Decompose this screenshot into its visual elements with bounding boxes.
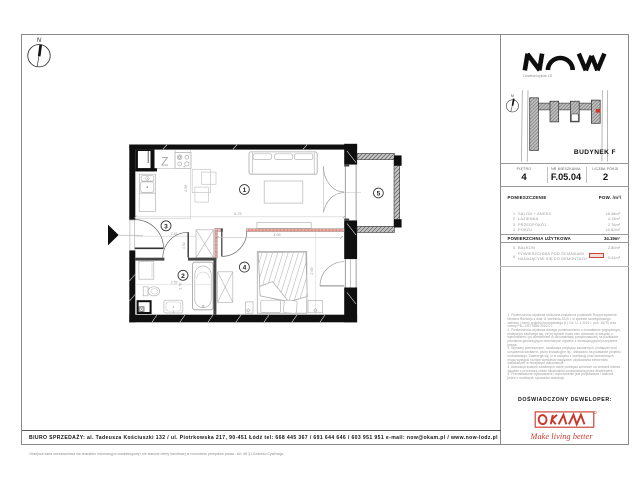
svg-text:Dowborczyków 18: Dowborczyków 18 <box>523 74 551 78</box>
svg-text:2.59: 2.59 <box>184 185 188 192</box>
svg-text:Make living better: Make living better <box>530 432 593 441</box>
svg-text:4.05: 4.05 <box>273 233 280 237</box>
svg-text:2.51: 2.51 <box>171 232 178 236</box>
svg-text:1.76: 1.76 <box>178 283 182 290</box>
svg-text:3: 3 <box>164 223 168 230</box>
svg-text:N: N <box>37 37 42 44</box>
svg-text:5: 5 <box>377 190 381 197</box>
svg-text:4: 4 <box>243 265 247 272</box>
svg-text:1: 1 <box>243 187 247 194</box>
svg-text:6.75: 6.75 <box>234 212 241 216</box>
svg-text:N: N <box>511 93 514 98</box>
svg-text:Z: Z <box>161 155 169 169</box>
svg-text:2: 2 <box>181 273 185 280</box>
svg-text:2.69: 2.69 <box>310 267 314 274</box>
svg-text:0.92: 0.92 <box>182 242 186 249</box>
svg-text:2.52: 2.52 <box>171 281 178 285</box>
